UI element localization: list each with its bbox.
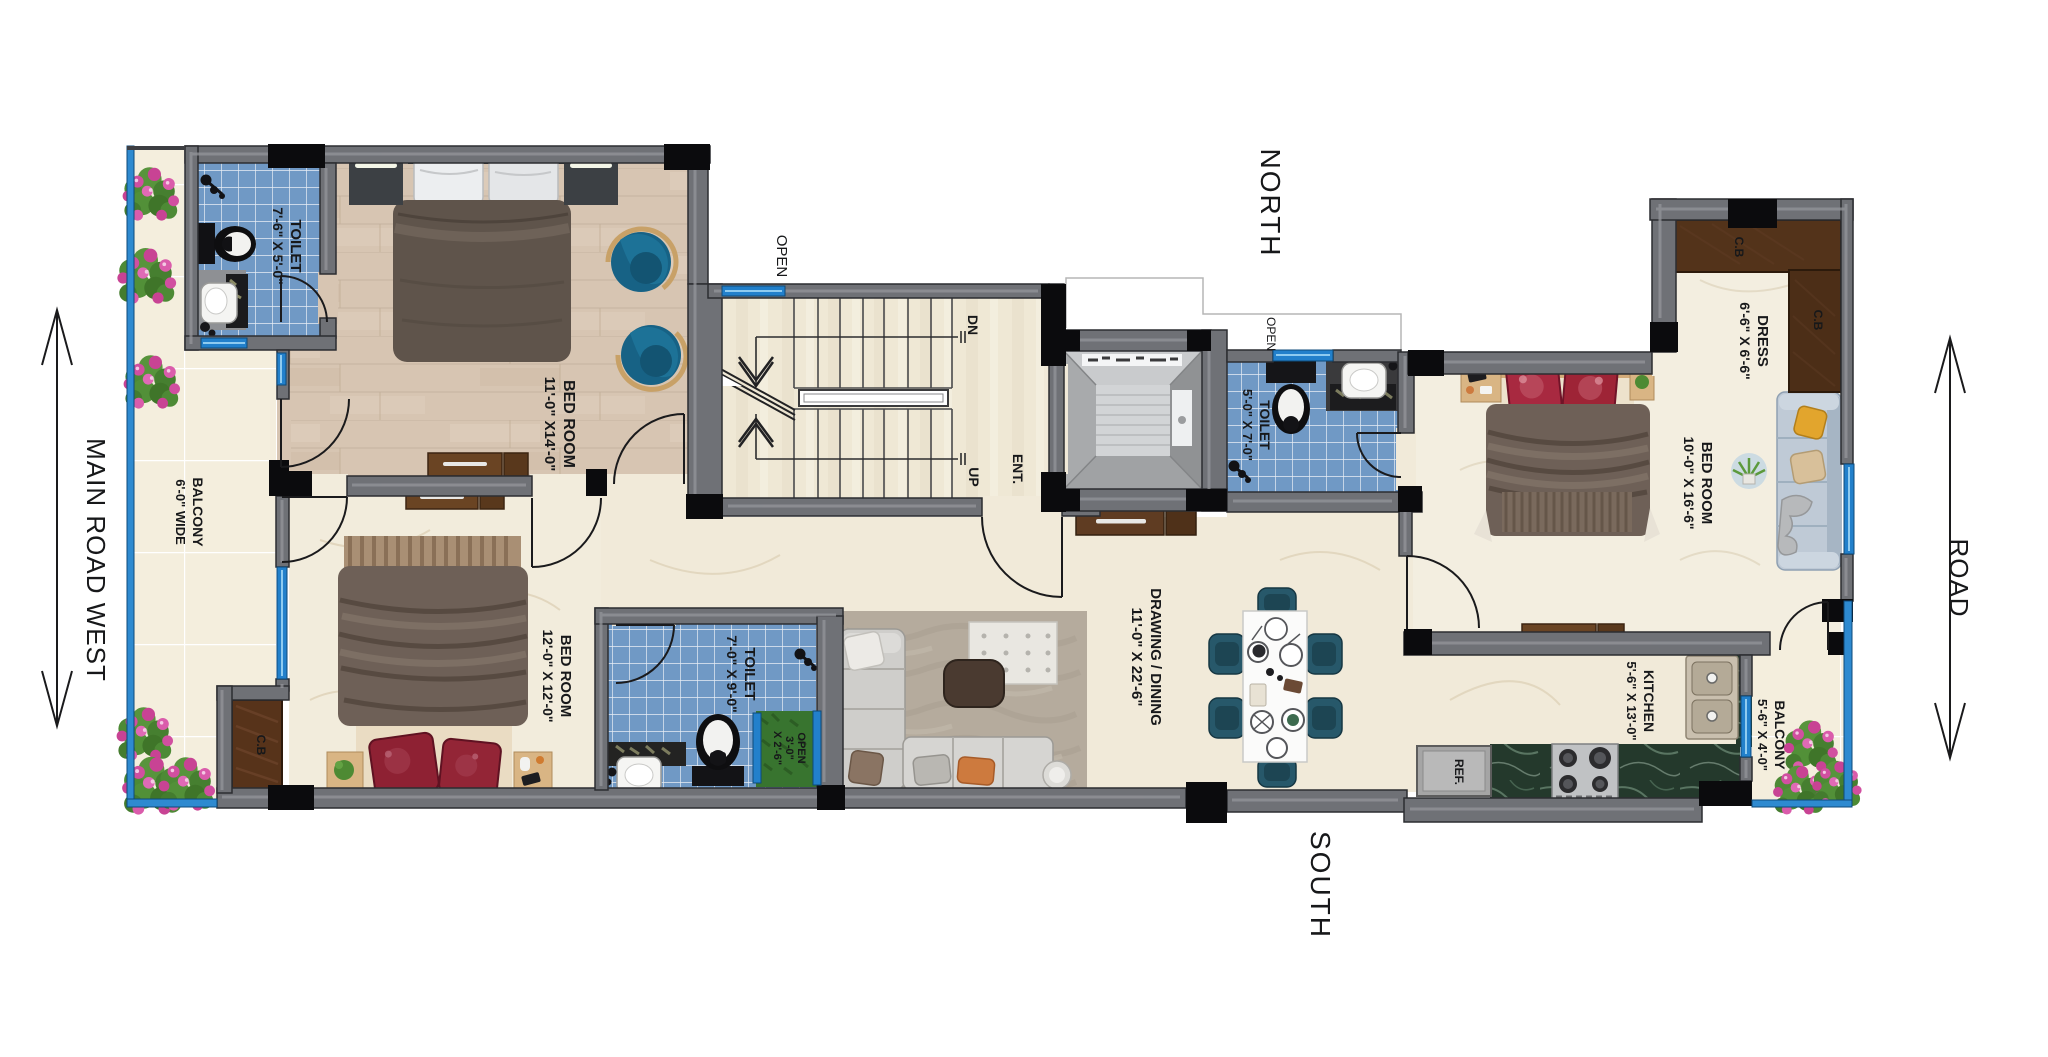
svg-text:MAIN ROAD WEST: MAIN ROAD WEST bbox=[81, 438, 111, 682]
svg-text:ENT.: ENT. bbox=[1010, 454, 1026, 484]
svg-text:OPEN: OPEN bbox=[773, 235, 790, 278]
svg-text:NORTH: NORTH bbox=[1255, 148, 1286, 257]
svg-text:SOUTH: SOUTH bbox=[1305, 831, 1336, 939]
svg-text:DN: DN bbox=[965, 315, 981, 335]
svg-text:C.B: C.B bbox=[254, 735, 268, 756]
svg-text:ROAD: ROAD bbox=[1944, 538, 1974, 617]
svg-text:REF.: REF. bbox=[1452, 759, 1466, 785]
svg-text:UP: UP bbox=[966, 467, 982, 486]
svg-text:OPEN: OPEN bbox=[1264, 317, 1278, 351]
svg-text:C.B: C.B bbox=[1732, 237, 1746, 258]
svg-text:C.B: C.B bbox=[1811, 310, 1825, 331]
